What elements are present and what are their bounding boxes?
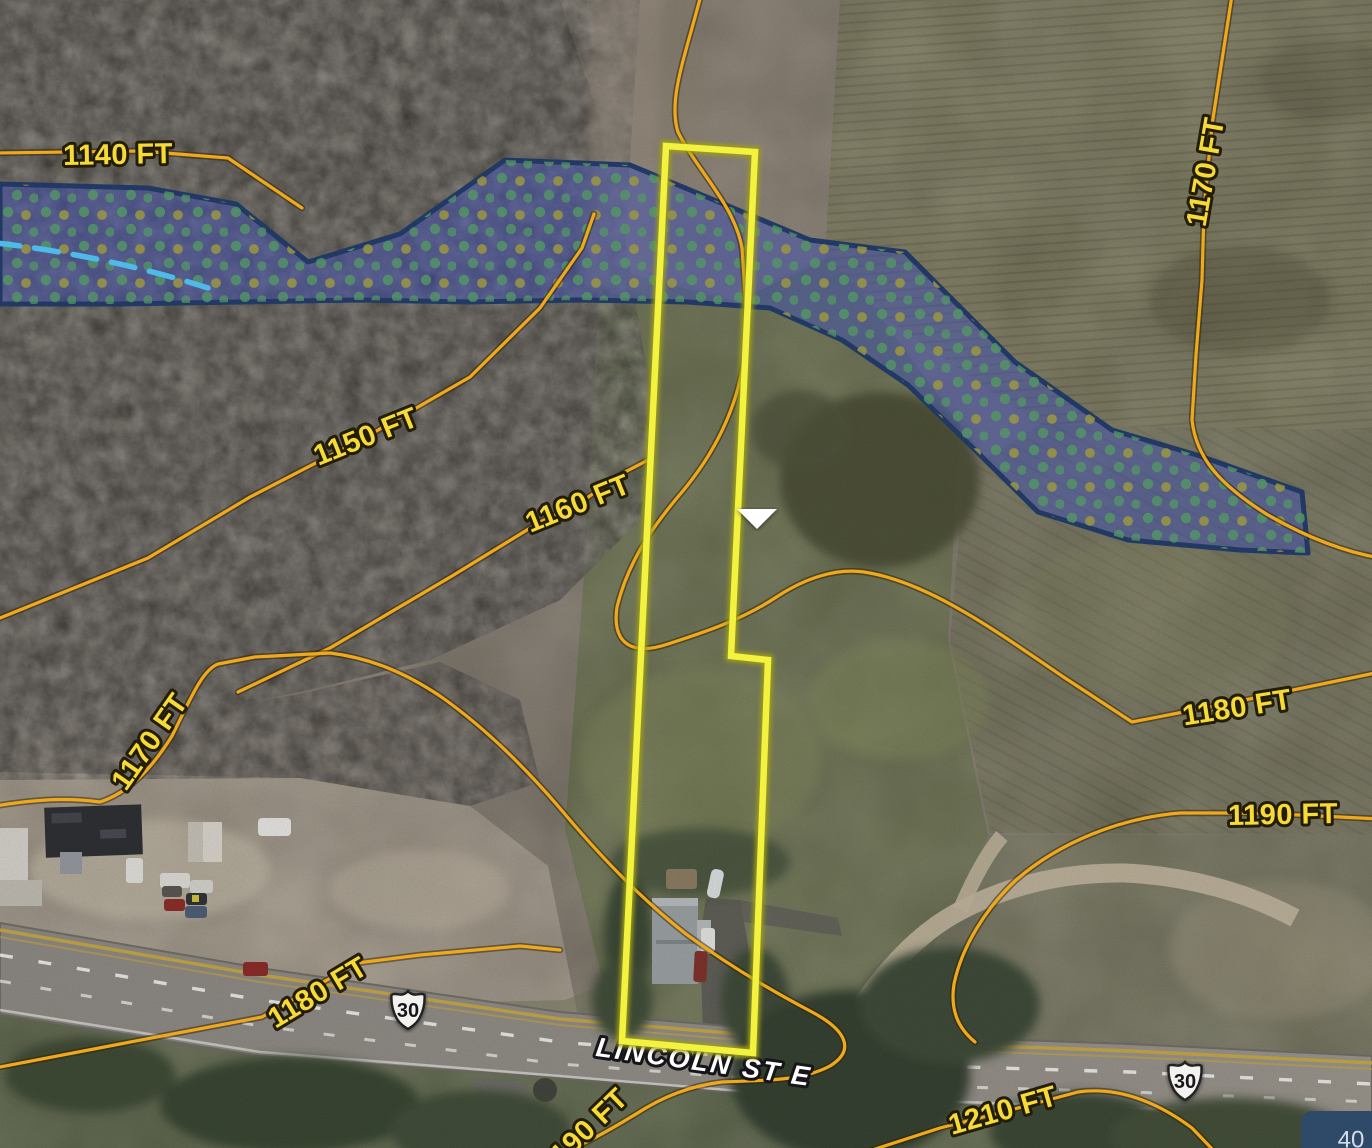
shield-number-2: 30 (1174, 1071, 1196, 1093)
contour-label-1190-right: 1190 FT (1228, 798, 1338, 832)
corner-panel-value: 40 (1338, 1127, 1365, 1148)
map-viewport[interactable]: 1140 FT 1150 FT 1160 FT 1170 FT 1170 FT … (0, 0, 1372, 1148)
contour-label-1140: 1140 FT (63, 138, 173, 172)
shield-number-1: 30 (397, 1000, 419, 1022)
corner-panel[interactable]: 40 (1301, 1111, 1372, 1148)
map-canvas: 1140 FT 1150 FT 1160 FT 1170 FT 1170 FT … (0, 0, 1372, 1148)
photo-grain-light (0, 0, 1372, 1148)
